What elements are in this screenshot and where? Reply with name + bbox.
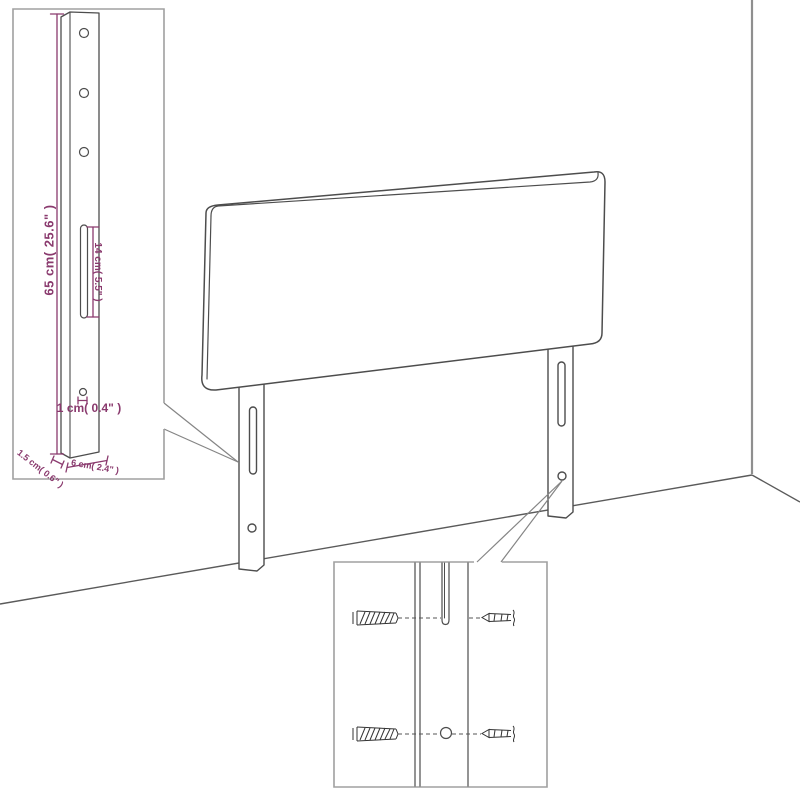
leg-callout-line-lower (164, 429, 238, 462)
screw-inset-border (334, 562, 547, 787)
headboard-panel (202, 172, 605, 390)
floor-line-right (752, 475, 800, 502)
leg-callout-line-upper (164, 403, 238, 462)
panel-outline (202, 172, 605, 390)
inset2-hole (441, 728, 452, 739)
floor-line-left (0, 475, 752, 604)
dim-label-hole-diameter: 1 cm( 0.4" ) (57, 402, 121, 414)
dim-label-leg-height: 65 cm( 25.6" ) (43, 204, 56, 295)
dim-label-slot-length: 14 cm( 5.5" ) (92, 242, 102, 301)
screw-callout-line-right (501, 481, 562, 562)
inset2-slot (442, 563, 449, 625)
screw-callout-line-left (477, 481, 562, 562)
threaded-screw-icon (353, 611, 398, 625)
pointed-screw-icon (482, 610, 515, 626)
diagram-canvas: 65 cm( 25.6" ) 14 cm( 5.5" ) 1 cm( 0.4" … (0, 0, 800, 800)
line-art (0, 0, 800, 800)
dim-bracket-15-bar (53, 460, 63, 465)
leg-details (248, 362, 566, 532)
